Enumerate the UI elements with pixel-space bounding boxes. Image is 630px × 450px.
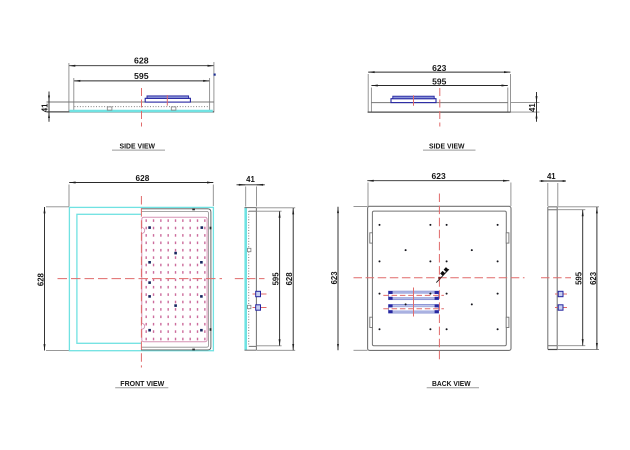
svg-text:595: 595	[432, 78, 447, 87]
svg-text:SIDE VIEW: SIDE VIEW	[429, 141, 465, 150]
svg-text:41: 41	[547, 172, 556, 181]
svg-text:BACK VIEW: BACK VIEW	[432, 379, 471, 388]
svg-text:628: 628	[37, 272, 46, 286]
svg-text:595: 595	[134, 72, 149, 81]
svg-text:595: 595	[271, 272, 280, 286]
svg-text:595: 595	[575, 271, 584, 285]
svg-text:41: 41	[246, 175, 255, 184]
svg-text:628: 628	[134, 56, 149, 65]
svg-text:628: 628	[285, 272, 294, 286]
svg-text:623: 623	[330, 271, 339, 285]
svg-text:41: 41	[528, 103, 537, 112]
svg-text:SIDE VIEW: SIDE VIEW	[120, 141, 156, 150]
svg-text:623: 623	[432, 64, 447, 73]
svg-text:FRONT VIEW: FRONT VIEW	[120, 379, 165, 388]
svg-text:41: 41	[41, 103, 50, 112]
svg-text:623: 623	[589, 271, 598, 285]
svg-text:623: 623	[432, 172, 447, 181]
svg-text:628: 628	[136, 174, 150, 183]
